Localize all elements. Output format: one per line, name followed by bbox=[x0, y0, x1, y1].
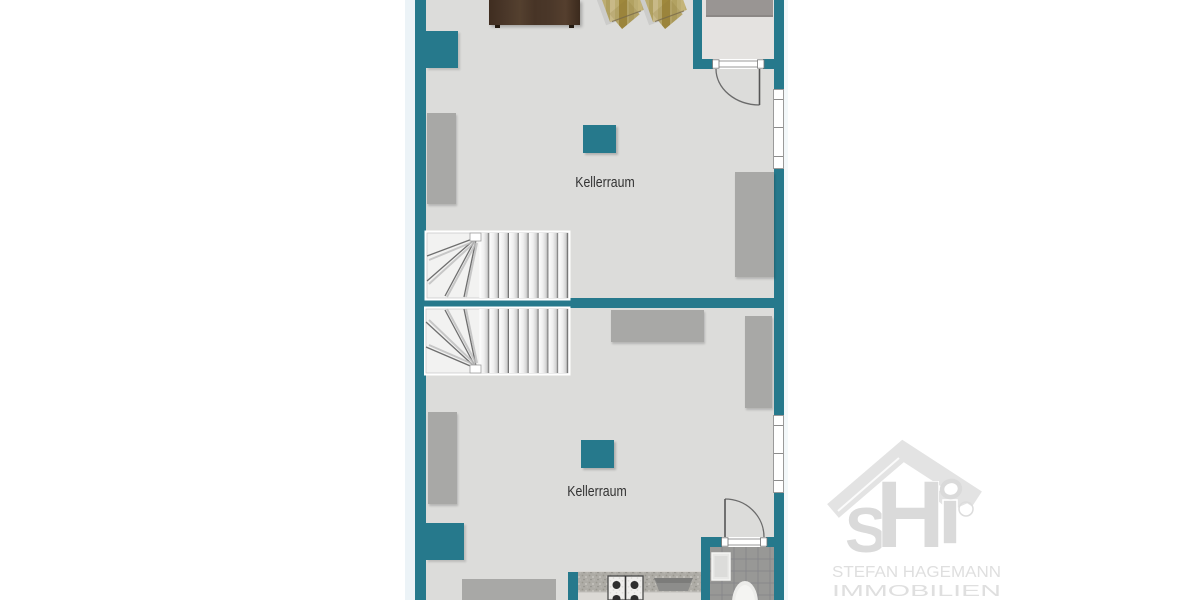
svg-text:H: H bbox=[876, 462, 945, 568]
svg-text:STEFAN HAGEMANN: STEFAN HAGEMANN bbox=[832, 564, 1001, 581]
svg-text:IMMOBILIEN: IMMOBILIEN bbox=[832, 583, 1001, 600]
